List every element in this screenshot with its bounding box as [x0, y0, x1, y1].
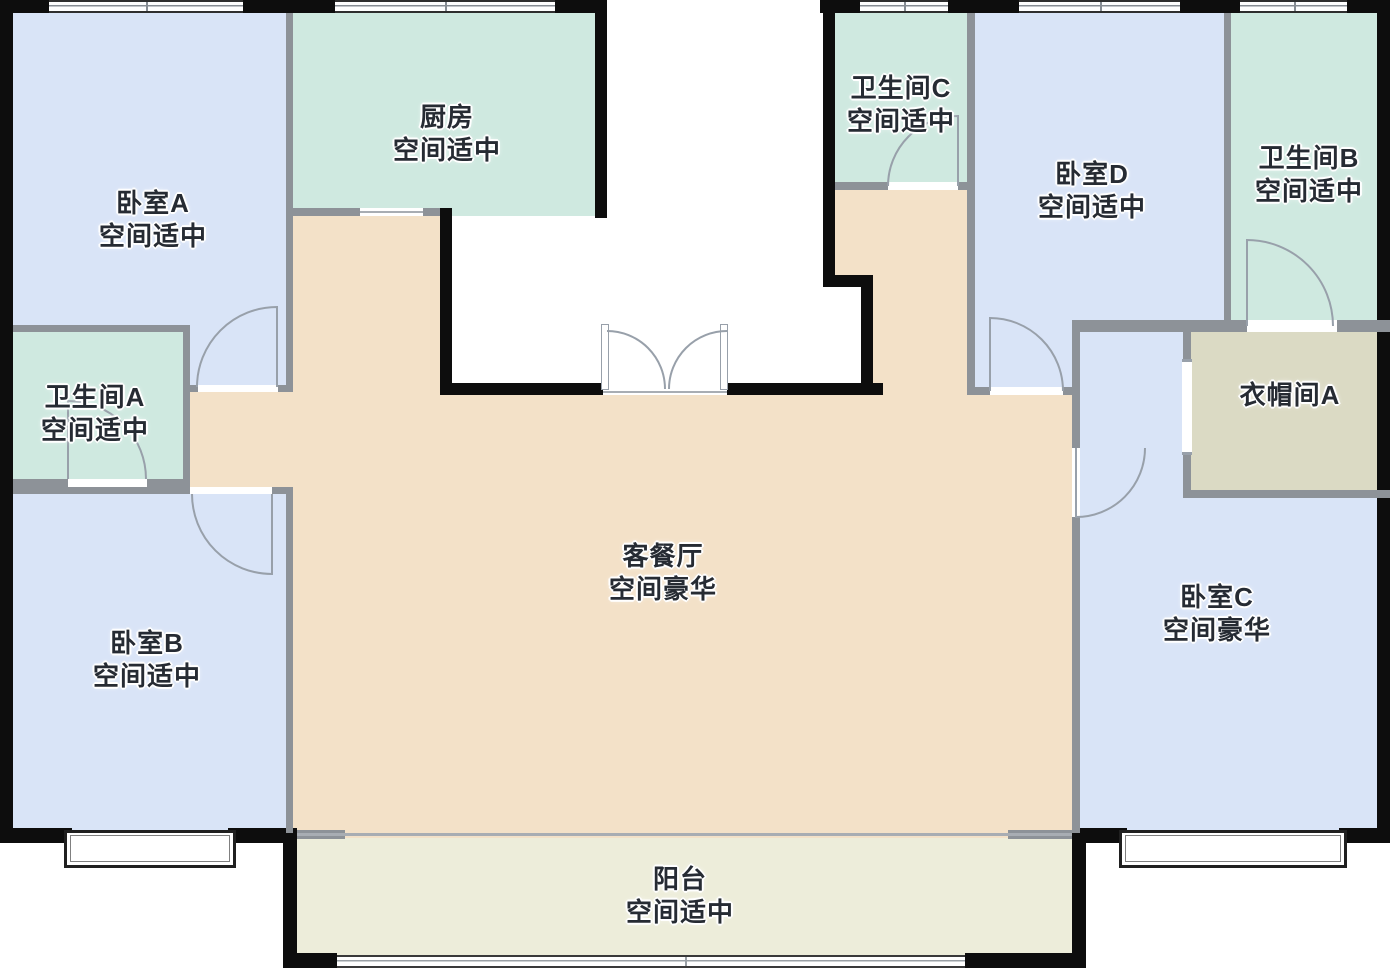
room-label-bedroom-b: 卧室B空间适中 — [93, 627, 201, 693]
room-label-bedroom-d: 卧室D空间适中 — [1038, 158, 1146, 224]
labels-layer: 卧室A空间适中厨房空间适中卫生间A空间适中卧室B空间适中客餐厅空间豪华阳台空间适… — [0, 0, 1400, 970]
room-label-bath-a: 卫生间A空间适中 — [41, 381, 149, 447]
room-label-balcony: 阳台空间适中 — [626, 863, 734, 929]
room-label-living-dining: 客餐厅空间豪华 — [609, 540, 717, 606]
room-label-bedroom-a: 卧室A空间适中 — [99, 187, 207, 253]
room-label-kitchen: 厨房空间适中 — [393, 101, 501, 167]
room-label-bath-c: 卫生间C空间适中 — [847, 72, 955, 138]
room-label-bath-b: 卫生间B空间适中 — [1255, 142, 1363, 208]
room-label-closet-a: 衣帽间A — [1240, 379, 1341, 412]
floor-plan: 卧室A空间适中厨房空间适中卫生间A空间适中卧室B空间适中客餐厅空间豪华阳台空间适… — [0, 0, 1400, 970]
room-label-bedroom-c: 卧室C空间豪华 — [1163, 581, 1271, 647]
